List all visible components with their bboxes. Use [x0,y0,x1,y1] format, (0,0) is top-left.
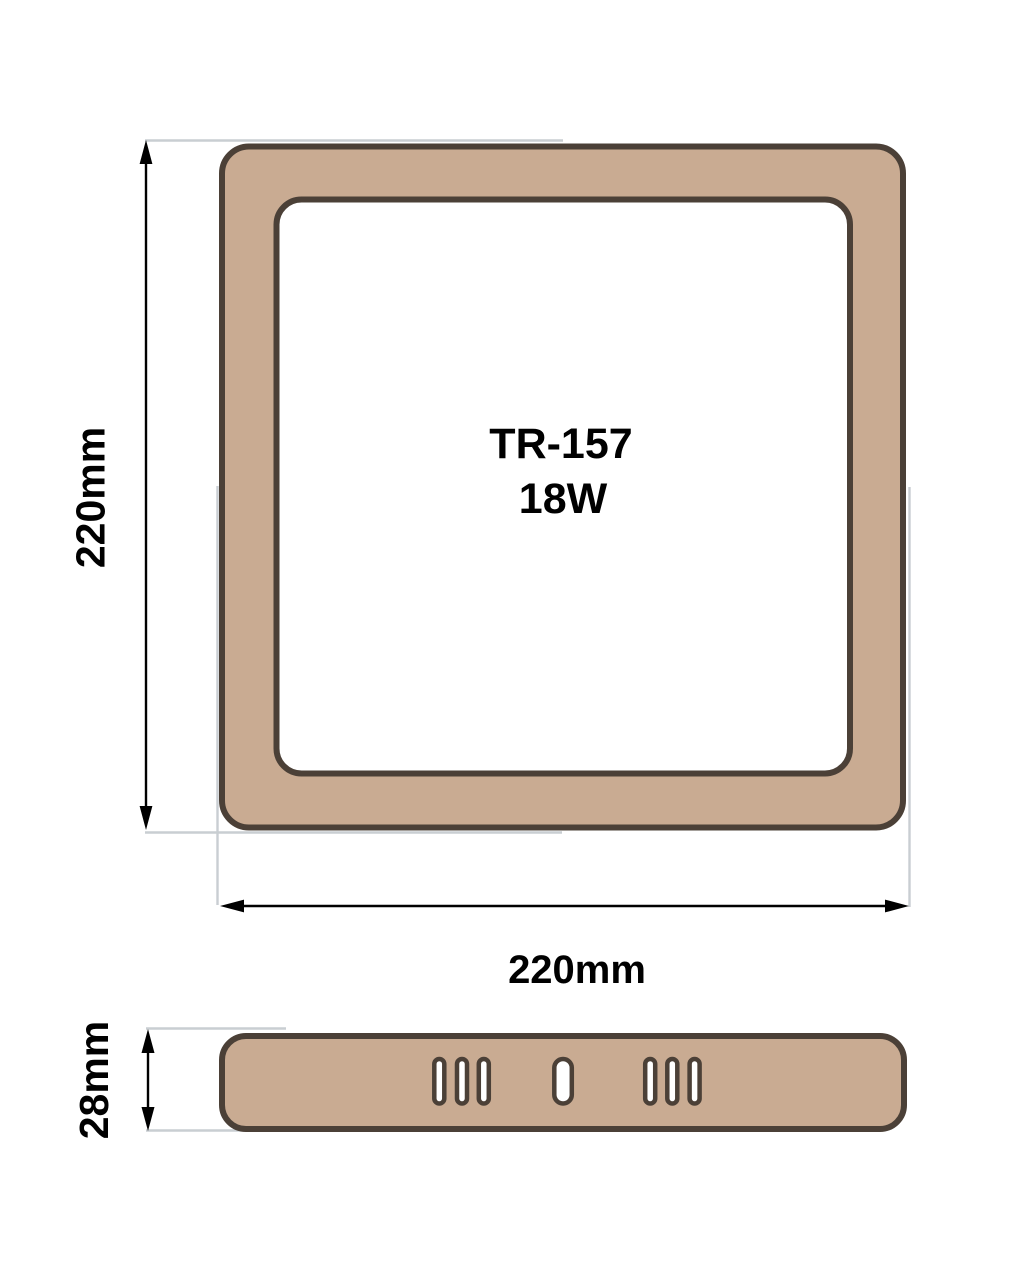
svg-text:220mm: 220mm [508,948,646,992]
svg-text:220mm: 220mm [68,427,114,568]
svg-text:18W: 18W [519,475,608,523]
svg-text:28mm: 28mm [71,1021,117,1140]
svg-text:TR-157: TR-157 [489,420,632,468]
